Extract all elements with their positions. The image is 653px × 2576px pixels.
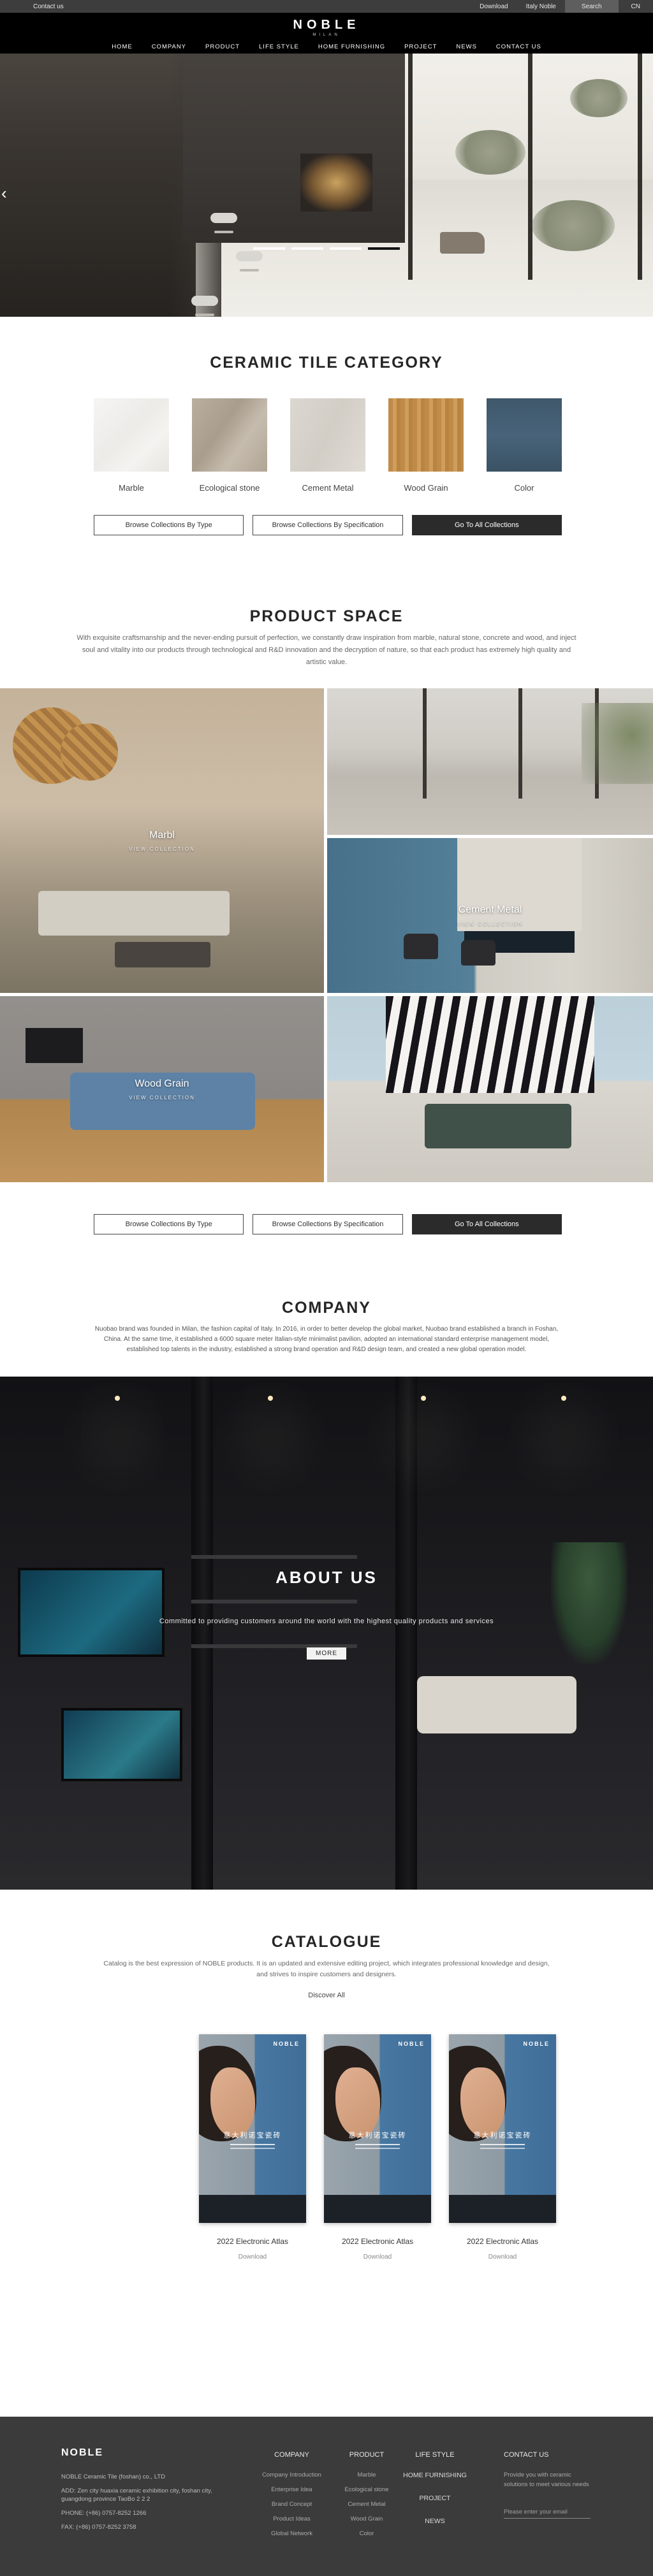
contact-us-link[interactable]: Contact us [24,3,73,10]
atlas-download-2[interactable]: Download [324,2254,431,2261]
discover-all-link[interactable]: Discover All [0,1992,653,1999]
footer-company-info: NOBLE Ceramic Tile (foshan) co., LTD ADD… [61,2473,221,2537]
catalogue-covers: NOBLE 意大利诺宝瓷砖 2022 Electronic Atlas Down… [199,2034,554,2261]
nav-contact-us[interactable]: CONTACT US [496,43,541,50]
gallery-cement-cta[interactable]: VIEW COLLECTION [457,921,524,927]
catalogue-paragraph: Catalog is the best expression of NOBLE … [103,1958,550,1980]
fireplace-shape [300,154,372,212]
top-utility-bar: Contact us Download Italy Noble Search C… [0,0,653,13]
nav-news[interactable]: NEWS [456,43,477,50]
category-item-cement-metal[interactable]: Cement Metal [290,398,365,493]
atlas-download-1[interactable]: Download [199,2254,306,2261]
nav-company[interactable]: COMPANY [152,43,186,50]
logo-subtext: MILAN [0,33,653,37]
catalogue-section: CATALOGUE Catalog is the best expression… [0,1890,653,2417]
footer-company-line: NOBLE Ceramic Tile (foshan) co., LTD [61,2473,221,2481]
carousel-prev-icon[interactable]: ‹ [1,185,7,201]
category-item-color[interactable]: Color [487,398,562,493]
about-us-subtitle: Committed to providing customers around … [0,1617,653,1625]
showroom-tv-2 [61,1708,182,1781]
nav-product[interactable]: PRODUCT [205,43,240,50]
logo-text: NOBLE [0,18,653,33]
site-header: NOBLE MILAN HOME COMPANY PRODUCT LIFE ST… [0,13,653,54]
carousel-indicator-4-active[interactable] [368,247,400,250]
wood-grain-swatch [388,398,464,472]
carousel-indicator-3[interactable] [330,247,362,250]
catalogue-cover-3[interactable]: NOBLE 意大利诺宝瓷砖 [449,2034,556,2223]
gallery-wood-cta[interactable]: VIEW COLLECTION [129,1095,195,1101]
footer-link-life-style[interactable]: LIFE STYLE [397,2451,473,2459]
footer-contact: CONTACT US Provide you with ceramic solu… [504,2451,593,2519]
italy-noble-link[interactable]: Italy Noble [517,3,565,10]
nav-life-style[interactable]: LIFE STYLE [259,43,299,50]
footer-fax: FAX: (+86) 0757-8252 3758 [61,2523,221,2531]
main-nav: HOME COMPANY PRODUCT LIFE STYLE HOME FUR… [0,43,653,50]
footer-link-brand-concept[interactable]: Brand Concept [252,2501,332,2508]
about-more-button[interactable]: MORE [307,1647,346,1660]
browse-by-spec-button[interactable]: Browse Collections By Specification [253,515,402,535]
footer-contact-desc: Provide you with ceramic solutions to me… [504,2470,593,2489]
footer-link-home-furnishing[interactable]: HOME FURNISHING [397,2471,473,2479]
footer-logo: NOBLE [61,2447,103,2459]
gallery-marble-cta[interactable]: VIEW COLLECTION [129,846,195,852]
atlas-name-1: 2022 Electronic Atlas [199,2237,306,2246]
company-paragraph: Nuobao brand was founded in Milan, the f… [91,1324,562,1355]
atlas-name-2: 2022 Electronic Atlas [324,2237,431,2246]
product-space-gallery: Marbl VIEW COLLECTION Cement Metal VIEW … [0,688,653,1182]
footer-link-news[interactable]: NEWS [397,2517,473,2525]
footer-col-company: COMPANY Company Introduction Enterprise … [252,2451,332,2545]
nav-project[interactable]: PROJECT [404,43,437,50]
footer-link-wood-grain[interactable]: Wood Grain [332,2515,402,2522]
footer-col-product: PRODUCT Marble Ecological stone Cement M… [332,2451,402,2545]
browse-by-type-button-2[interactable]: Browse Collections By Type [94,1214,244,1234]
all-collections-button[interactable]: Go To All Collections [412,515,562,535]
footer: NOBLE NOBLE Ceramic Tile (foshan) co., L… [0,2417,653,2576]
product-space-title: PRODUCT SPACE [0,607,653,626]
footer-link-marble[interactable]: Marble [332,2471,402,2478]
category-item-marble[interactable]: Marble [94,398,169,493]
category-title: CERAMIC TILE CATEGORY [0,354,653,372]
footer-col-lifestyle: LIFE STYLE HOME FURNISHING PROJECT NEWS [397,2451,473,2540]
footer-link-product-ideas[interactable]: Product Ideas [252,2515,332,2522]
gallery-item-cement-metal[interactable]: Cement Metal VIEW COLLECTION [327,838,653,993]
browse-by-spec-button-2[interactable]: Browse Collections By Specification [253,1214,402,1234]
atlas-download-3[interactable]: Download [449,2254,556,2261]
footer-contact-title: CONTACT US [504,2451,593,2459]
carousel-indicators [0,247,653,250]
gallery-wood-label: Wood Grain [135,1078,189,1090]
footer-link-color[interactable]: Color [332,2530,402,2537]
gallery-item-marble[interactable]: Marbl VIEW COLLECTION [0,688,324,993]
about-us-title: ABOUT US [0,1568,653,1588]
hero-carousel [0,54,653,317]
catalogue-cover-1[interactable]: NOBLE 意大利诺宝瓷砖 [199,2034,306,2223]
logo[interactable]: NOBLE MILAN [0,18,653,37]
gallery-item-wood-grain[interactable]: Wood Grain VIEW COLLECTION [0,996,324,1182]
footer-address: ADD: Zen city huaxia ceramic exhibition … [61,2487,221,2503]
gallery-cement-label: Cement Metal [459,904,522,916]
language-toggle[interactable]: CN [619,3,653,10]
gallery-marble-label: Marbl [149,830,175,841]
product-space-paragraph: With exquisite craftsmanship and the nev… [71,632,582,669]
catalogue-cover-2[interactable]: NOBLE 意大利诺宝瓷砖 [324,2034,431,2223]
company-title: COMPANY [0,1299,653,1317]
footer-link-project[interactable]: PROJECT [397,2494,473,2502]
ecological-stone-swatch [192,398,267,472]
category-tiles: Marble Ecological stone Cement Metal Woo… [94,398,562,493]
footer-link-company-introduction[interactable]: Company Introduction [252,2471,332,2478]
carousel-indicator-1[interactable] [253,247,285,250]
plant-shape [551,1542,627,1663]
gallery-item-striped-room[interactable] [327,996,653,1182]
all-collections-button-2[interactable]: Go To All Collections [412,1214,562,1234]
about-us-banner: ABOUT US Committed to providing customer… [0,1377,653,1890]
footer-link-enterprise-idea[interactable]: Enterprise Idea [252,2486,332,2493]
carousel-indicator-2[interactable] [291,247,323,250]
sofa-shape [417,1676,576,1733]
search-button[interactable]: Search [565,0,619,13]
download-link[interactable]: Download [471,3,517,10]
cement-metal-swatch [290,398,365,472]
footer-link-ecological-stone[interactable]: Ecological stone [332,2486,402,2493]
nav-home[interactable]: HOME [112,43,133,50]
product-space-section: PRODUCT SPACE With exquisite craftsmansh… [0,599,653,1268]
marble-swatch [94,398,169,472]
nav-home-furnishing[interactable]: HOME FURNISHING [318,43,385,50]
category-section: CERAMIC TILE CATEGORY Marble Ecological … [0,317,653,599]
footer-link-cement-metal[interactable]: Cement Metal [332,2501,402,2508]
catalogue-item-2: NOBLE 意大利诺宝瓷砖 2022 Electronic Atlas Down… [324,2034,431,2261]
footer-link-global-network[interactable]: Global Network [252,2530,332,2537]
catalogue-item-3: NOBLE 意大利诺宝瓷砖 2022 Electronic Atlas Down… [449,2034,556,2261]
category-item-ecological-stone[interactable]: Ecological stone [192,398,267,493]
catalogue-item-1: NOBLE 意大利诺宝瓷砖 2022 Electronic Atlas Down… [199,2034,306,2261]
gallery-item-interior[interactable] [327,688,653,835]
catalogue-title: CATALOGUE [0,1933,653,1951]
page: Contact us Download Italy Noble Search C… [0,0,653,2576]
company-section: COMPANY Nuobao brand was founded in Mila… [0,1268,653,1377]
color-swatch [487,398,562,472]
browse-by-type-button[interactable]: Browse Collections By Type [94,515,244,535]
newsletter-email-input[interactable] [504,2506,591,2519]
footer-phone: PHONE: (+86) 0757-8252 1266 [61,2509,221,2517]
category-item-wood-grain[interactable]: Wood Grain [388,398,464,493]
atlas-name-3: 2022 Electronic Atlas [449,2237,556,2246]
